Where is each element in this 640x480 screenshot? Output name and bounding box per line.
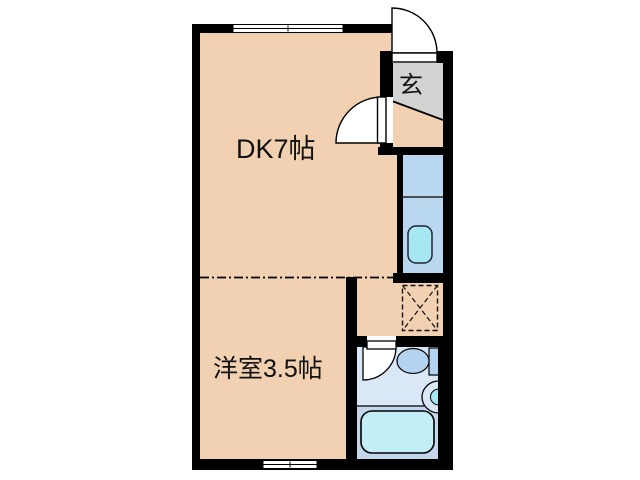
entrance-door-leaf	[392, 53, 437, 62]
bathtub	[361, 411, 434, 453]
entrance-door-swing-arc	[392, 8, 437, 53]
window-bottom	[263, 461, 317, 469]
entrance-label: 玄	[399, 72, 423, 99]
wall-bath-top-left-stub	[357, 336, 367, 347]
wall-bottom	[192, 459, 453, 470]
dk-room-label: DK7帖	[236, 134, 316, 164]
floor-plan-canvas: DK7帖 洋室3.5帖 玄	[0, 0, 640, 480]
wall-entrance-right-stub	[437, 51, 453, 63]
window-top	[233, 25, 343, 33]
wall-dk-entrance-upper	[380, 51, 393, 97]
entrance-door	[392, 8, 437, 63]
wall-western-right	[346, 277, 357, 461]
dk-door-leaf	[378, 97, 387, 143]
wall-hallway-bottom	[378, 147, 453, 155]
floor-plan: DK7帖 洋室3.5帖 玄	[0, 0, 640, 480]
wall-right-lower	[438, 336, 453, 470]
wall-washroom-left	[397, 155, 403, 273]
wall-bath-top-right	[396, 336, 453, 347]
washbasin-fixture	[408, 226, 432, 263]
wall-right-upper	[443, 51, 453, 336]
toilet-bowl	[397, 349, 429, 374]
bathroom-door-leaf	[367, 341, 396, 349]
western-room-label: 洋室3.5帖	[213, 355, 323, 383]
wall-left	[192, 24, 200, 470]
toilet	[397, 348, 440, 375]
wall-washroom-bottom	[393, 273, 453, 283]
